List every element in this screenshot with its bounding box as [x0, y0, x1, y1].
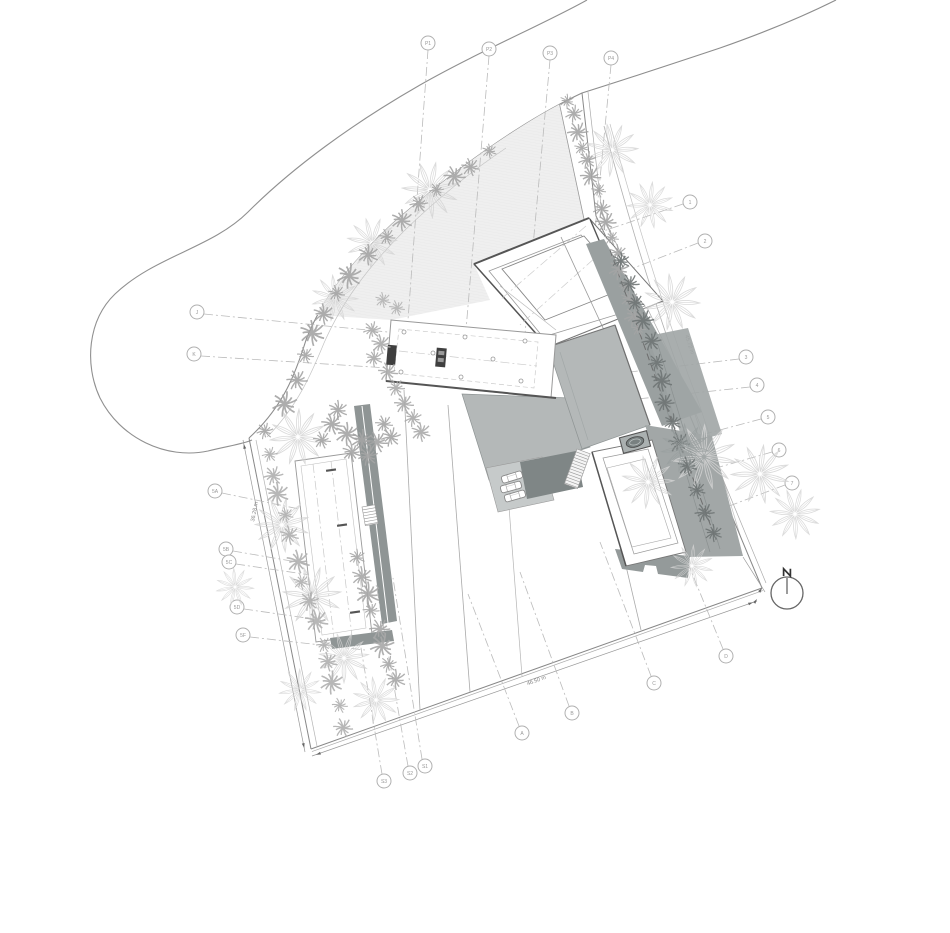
svg-text:P3: P3	[547, 51, 553, 57]
svg-text:1: 1	[689, 200, 692, 206]
svg-text:S3: S3	[381, 779, 387, 785]
svg-text:P4: P4	[608, 56, 614, 62]
svg-text:D: D	[724, 654, 728, 660]
svg-text:C: C	[652, 681, 656, 687]
svg-text:5C: 5C	[226, 560, 233, 566]
svg-text:2: 2	[704, 239, 707, 245]
svg-text:S2: S2	[407, 771, 413, 777]
svg-text:5A: 5A	[212, 489, 219, 495]
svg-text:4: 4	[756, 383, 759, 389]
svg-text:5B: 5B	[223, 547, 230, 553]
svg-text:5: 5	[767, 415, 770, 421]
svg-text:3: 3	[745, 355, 748, 361]
svg-text:P2: P2	[486, 47, 492, 53]
svg-text:S1: S1	[422, 764, 428, 770]
svg-text:5F: 5F	[240, 633, 246, 639]
svg-text:P1: P1	[425, 41, 431, 47]
svg-text:7: 7	[791, 481, 794, 487]
svg-text:5D: 5D	[234, 605, 241, 611]
